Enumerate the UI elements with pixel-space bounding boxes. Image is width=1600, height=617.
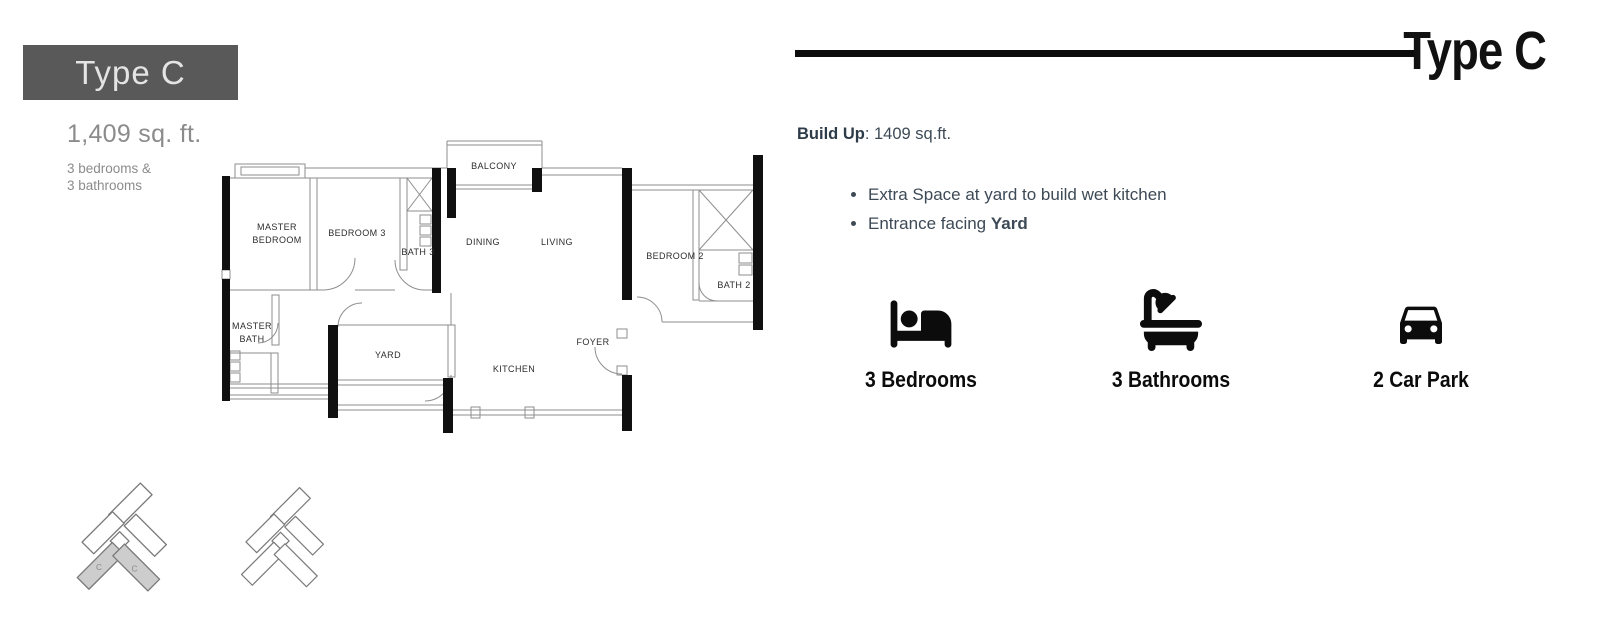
feature-carpark: 2 Car Park — [1296, 285, 1546, 393]
room-label-yard: YARD — [375, 350, 401, 360]
area-text: 1,409 sq. ft. — [67, 120, 202, 149]
room-label-bath3: BATH 3 — [401, 247, 434, 257]
bullet-item: Entrance facing Yard — [868, 209, 1167, 238]
tower-outline — [77, 483, 166, 591]
spec-text: 3 bedrooms & 3 bathrooms — [67, 160, 151, 194]
room-label-foyer: FOYER — [576, 337, 609, 347]
bullet-text: Entrance facing — [868, 214, 991, 233]
site-key-highlighted: C C — [56, 452, 180, 602]
bed-icon — [796, 285, 1046, 351]
spec-line-2: 3 bathrooms — [67, 177, 151, 194]
room-label-bedroom3: BEDROOM 3 — [328, 228, 386, 238]
room-label-master-bedroom-2: BEDROOM — [252, 235, 301, 245]
type-label-box: Type C — [23, 45, 238, 100]
spec-line-1: 3 bedrooms & — [67, 160, 151, 177]
feature-bullet-list: Extra Space at yard to build wet kitchen… — [846, 180, 1167, 238]
title-rule-line — [795, 50, 1417, 57]
unit-c-marker-left: C — [96, 563, 102, 572]
feature-label-carpark: 2 Car Park — [1311, 367, 1531, 393]
floorplan-drawing: BALCONY MASTER BEDROOM BEDROOM 3 BATH 3 … — [205, 133, 765, 433]
room-label-master-bedroom-1: MASTER — [257, 222, 297, 232]
room-label-bedroom2: BEDROOM 2 — [646, 251, 704, 261]
tower-outline — [242, 488, 324, 587]
room-label-master-bath-1: MASTER — [232, 321, 272, 331]
feature-label-bedrooms: 3 Bedrooms — [811, 367, 1031, 393]
feature-label-bathrooms: 3 Bathrooms — [1061, 367, 1281, 393]
bullet-text: Extra Space at yard to build wet kitchen — [868, 185, 1167, 204]
feature-bathrooms: 3 Bathrooms — [1046, 285, 1296, 393]
page-title: Type C — [1403, 20, 1546, 82]
build-up-text: Build Up: 1409 sq.ft. — [797, 125, 951, 144]
build-up-value: : 1409 sq.ft. — [865, 125, 951, 143]
type-label: Type C — [75, 54, 186, 92]
room-label-master-bath-2: BATH — [240, 334, 265, 344]
build-up-label: Build Up — [797, 125, 865, 143]
car-icon — [1296, 285, 1546, 351]
room-label-living: LIVING — [541, 237, 573, 247]
room-label-balcony: BALCONY — [471, 161, 517, 171]
bullet-item: Extra Space at yard to build wet kitchen — [868, 180, 1167, 209]
floorplan-walls-thin — [222, 141, 753, 418]
room-label-dining: DINING — [466, 237, 500, 247]
feature-bedrooms: 3 Bedrooms — [796, 285, 1046, 393]
room-label-kitchen: KITCHEN — [493, 364, 535, 374]
bullet-bold: Yard — [991, 214, 1028, 233]
floorplan-walls-structural — [222, 155, 763, 433]
feature-icons-row: 3 Bedrooms 3 Bathrooms 2 Car Park — [796, 285, 1546, 393]
bath-icon — [1046, 285, 1296, 351]
brochure-page: Type C 1,409 sq. ft. 3 bedrooms & 3 bath… — [0, 0, 1600, 617]
site-key-plain — [222, 458, 336, 598]
room-label-bath2: BATH 2 — [717, 280, 750, 290]
unit-c-marker-right: C — [132, 565, 138, 574]
